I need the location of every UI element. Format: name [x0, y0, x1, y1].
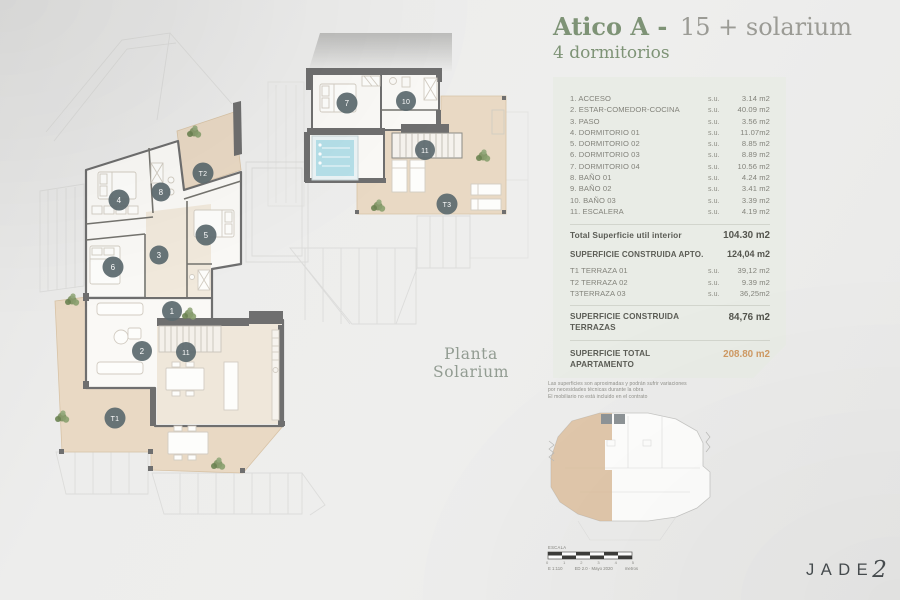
key-plan	[549, 413, 710, 540]
marker-escalera-main: 11	[176, 342, 196, 362]
room-row: 3. PASOs.u.3.56 m2	[570, 117, 770, 128]
svg-text:T1: T1	[111, 416, 120, 423]
scale-ratio: E 1:110	[548, 566, 563, 571]
brochure-page: 4 8 T2 5 3 6 1 2 11 T1 7 10 11 T3 Atico …	[0, 0, 900, 600]
key-plan-highlight	[551, 413, 612, 521]
room-row: 5. DORMITORIO 02s.u.8.85 m2	[570, 139, 770, 150]
scale-edition: ED 2.0 · Mayo 2020	[575, 566, 613, 571]
svg-text:4: 4	[117, 196, 122, 205]
svg-text:11: 11	[421, 148, 429, 155]
room-row: 1. ACCESOs.u.3.14 m2	[570, 94, 770, 105]
room-row: 7. DORMITORIO 04s.u.10.56 m2	[570, 162, 770, 173]
logo-number: 2	[872, 560, 887, 580]
main-floorplan	[55, 101, 285, 473]
total-util-row: Total Superficie util interior104.30 m2	[570, 230, 770, 241]
marker-dormitorio-03: 6	[103, 257, 124, 278]
area-summary-panel: 1. ACCESOs.u.3.14 m2 2. ESTAR-COMEDOR-CO…	[553, 77, 786, 378]
svg-text:2: 2	[140, 347, 145, 356]
solarium-caption: Planta Solarium	[416, 345, 526, 381]
construida-apto-row: SUPERFICIE CONSTRUIDA APTO.124,04 m2	[570, 249, 770, 259]
terraza-row: T2 TERRAZA 02s.u.9.39 m2	[570, 278, 770, 289]
svg-text:5: 5	[204, 231, 209, 240]
svg-text:7: 7	[345, 99, 350, 108]
svg-text:T3: T3	[443, 202, 452, 209]
divider	[570, 340, 770, 341]
room-row: 8. BAÑO 01s.u.4.24 m2	[570, 173, 770, 184]
cast-shadow	[308, 33, 452, 72]
plunge-pool	[312, 136, 358, 180]
marker-estar: 2	[132, 341, 152, 361]
logo-word: JADE	[806, 561, 874, 580]
marker-terraza-03: T3	[437, 194, 458, 215]
svg-text:8: 8	[159, 188, 164, 197]
room-row: 6. DORMITORIO 03s.u.8.89 m2	[570, 150, 770, 161]
total-apartamento-row: SUPERFICIE TOTALAPARTAMENTO 208.80 m2	[570, 349, 770, 370]
scale-meta: E 1:110 ED 2.0 · Mayo 2020 metros	[548, 566, 638, 571]
scale-units: metros	[625, 566, 638, 571]
solarium-floorplan	[304, 33, 506, 214]
svg-text:1: 1	[170, 307, 175, 316]
svg-text:6: 6	[111, 263, 116, 272]
page-subtitle: 4 dormitorios	[553, 43, 670, 63]
construida-terrazas-row: SUPERFICIE CONSTRUIDATERRAZAS 84,76 m2	[570, 312, 770, 333]
svg-text:10: 10	[402, 99, 410, 106]
jade2-logo: JADE 2	[806, 560, 887, 580]
room-row: 11. ESCALERAs.u.4.19 m2	[570, 207, 770, 218]
marker-paso: 3	[150, 246, 169, 265]
marker-dormitorio-02: 5	[196, 225, 217, 246]
divider	[570, 224, 770, 225]
marker-dormitorio-04: 7	[337, 93, 358, 114]
marker-acceso: 1	[162, 301, 182, 321]
page-title: Atico A - 15 + solarium	[553, 13, 852, 41]
divider	[570, 305, 770, 306]
total-value: 208.80 m2	[723, 349, 770, 360]
marker-dormitorio-01: 4	[109, 190, 130, 211]
svg-text:3: 3	[157, 251, 162, 260]
marker-escalera-sol: 11	[415, 140, 435, 160]
marker-terraza-02: T2	[193, 163, 214, 184]
disclaimer-text: Las superficies son aproximadas y podrán…	[548, 381, 687, 400]
room-row: 10. BAÑO 03s.u.3.39 m2	[570, 196, 770, 207]
unit-variant: 15 + solarium	[680, 13, 852, 41]
room-row: 2. ESTAR-COMEDOR-COCINAs.u.40.09 m2	[570, 105, 770, 116]
room-row: 9. BAÑO 02s.u.3.41 m2	[570, 184, 770, 195]
room-row: 4. DORMITORIO 01s.u.11.07m2	[570, 128, 770, 139]
terraza-row: T1 TERRAZA 01s.u.39,12 m2	[570, 266, 770, 277]
svg-text:T2: T2	[199, 171, 208, 178]
marker-bano-01: 8	[152, 183, 171, 202]
terraza-row: T3TERRAZA 03s.u.36,25m2	[570, 289, 770, 300]
scale-ticks: 012345	[546, 560, 634, 565]
svg-text:11: 11	[182, 350, 190, 357]
unit-name: Atico A -	[553, 12, 667, 41]
scale-bar	[548, 552, 632, 559]
marker-terraza-01: T1	[105, 408, 126, 429]
escala-label: ESCALA	[548, 545, 566, 550]
marker-bano-03: 10	[396, 91, 416, 111]
